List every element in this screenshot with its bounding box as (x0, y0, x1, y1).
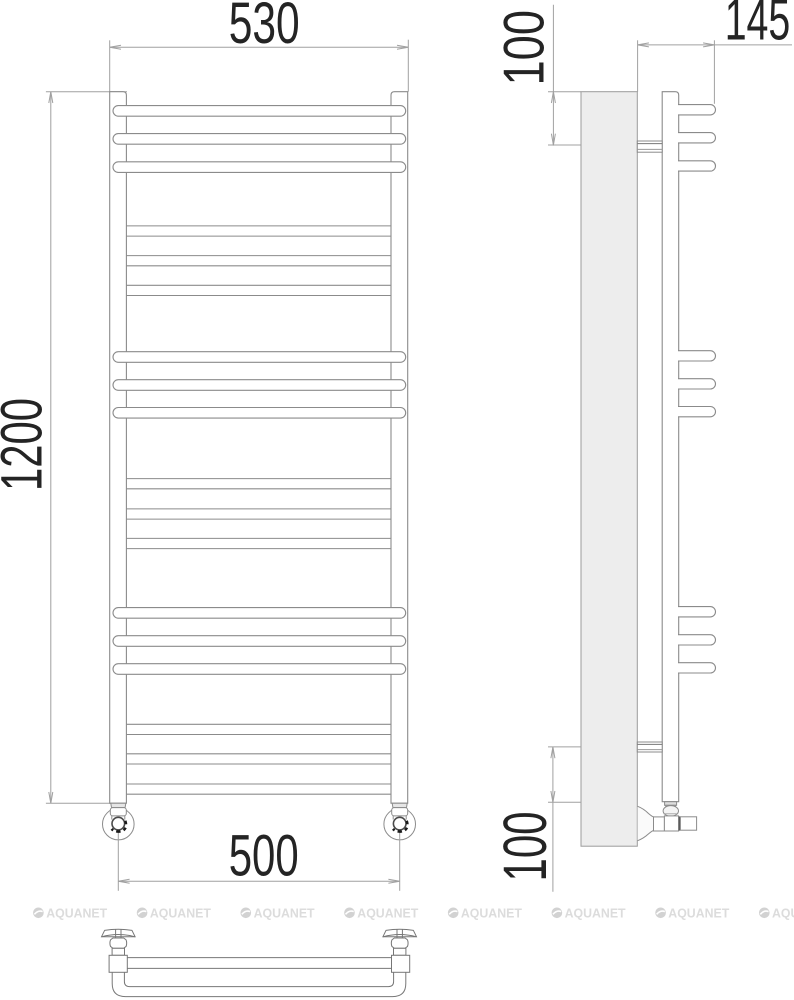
svg-text:530: 530 (229, 0, 300, 56)
svg-text:AQUANET: AQUANET (46, 905, 107, 920)
svg-text:AQUANET: AQUANET (150, 905, 211, 920)
svg-text:AQUANET: AQUANET (668, 905, 729, 920)
svg-text:AQUANET: AQUANET (772, 905, 794, 920)
svg-text:AQUANET: AQUANET (357, 905, 418, 920)
svg-text:AQUANET: AQUANET (565, 905, 626, 920)
svg-text:100: 100 (491, 812, 559, 882)
svg-text:500: 500 (229, 824, 299, 889)
svg-text:1200: 1200 (0, 398, 55, 491)
svg-text:100: 100 (493, 10, 557, 86)
svg-text:AQUANET: AQUANET (254, 905, 315, 920)
svg-text:AQUANET: AQUANET (461, 905, 522, 920)
